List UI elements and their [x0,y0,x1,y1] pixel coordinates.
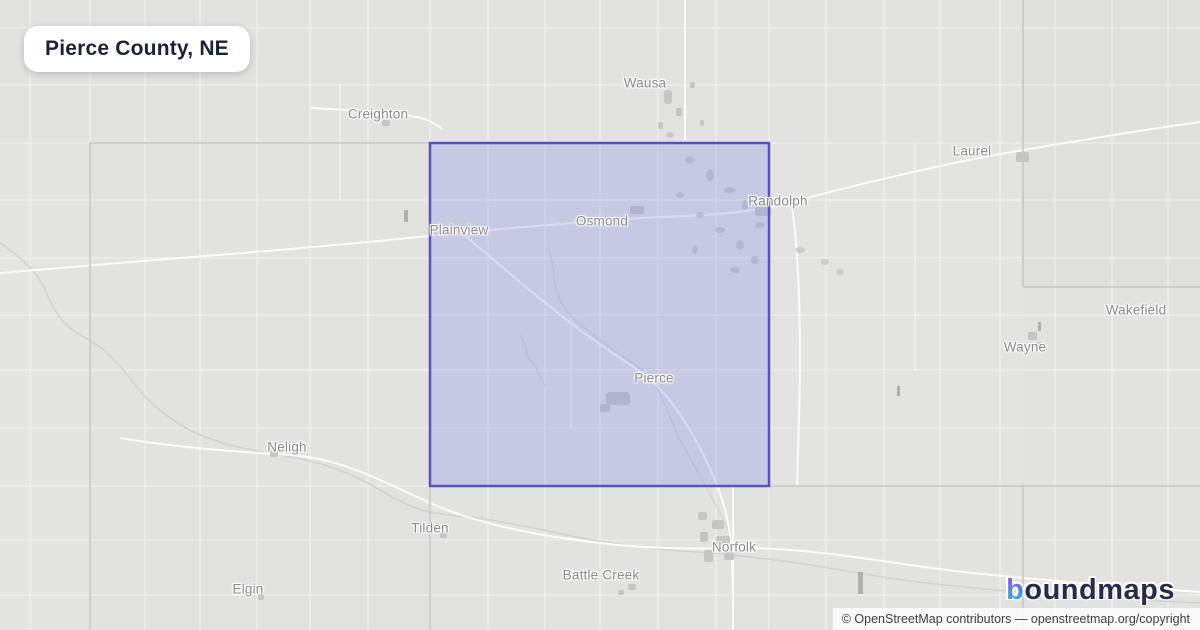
county-title: Pierce County, NE [45,37,229,60]
town-label-plainview: Plainview [430,223,489,238]
town-label-laurel: Laurel [953,144,992,159]
town-label-creighton: Creighton [348,107,408,122]
map-attribution: © OpenStreetMap contributors — openstree… [833,608,1200,630]
town-label-wausa: Wausa [624,76,667,91]
town-label-elgin: Elgin [232,582,263,597]
town-label-wayne: Wayne [1004,340,1047,355]
boundmaps-logo: boundmaps [1006,576,1175,605]
county-boundary-highlight [430,143,769,486]
boundmaps-logo-mark: b [1006,574,1024,606]
boundmaps-logo-text: oundmaps [1024,574,1175,606]
county-title-card: Pierce County, NE [24,26,250,72]
town-label-neligh: Neligh [267,440,306,455]
town-label-battle-creek: Battle Creek [563,568,640,583]
town-label-pierce: Pierce [634,371,673,386]
town-label-norfolk: Norfolk [712,540,756,555]
town-label-osmond: Osmond [576,214,628,229]
town-label-tilden: Tilden [411,521,448,536]
town-label-randolph: Randolph [748,194,807,209]
map-canvas [0,0,1200,630]
town-label-wakefield: Wakefield [1106,303,1167,318]
